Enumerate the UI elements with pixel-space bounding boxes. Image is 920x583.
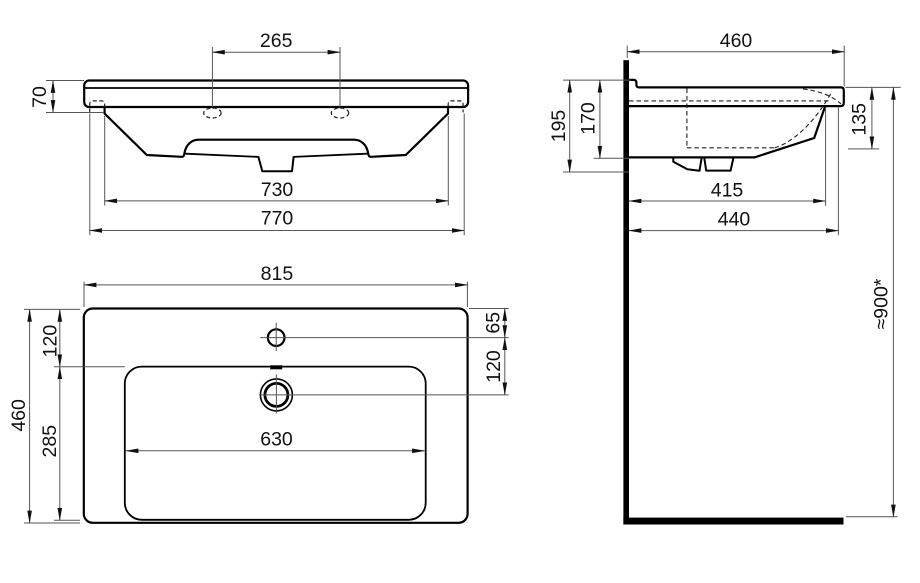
svg-text:460: 460 [720,30,753,52]
svg-text:≈900*: ≈900* [870,278,892,329]
svg-text:440: 440 [718,209,751,231]
svg-text:285: 285 [39,425,61,458]
svg-text:120: 120 [483,350,505,383]
svg-text:815: 815 [261,263,294,285]
svg-text:460: 460 [8,399,30,432]
svg-text:135: 135 [849,103,871,136]
svg-text:415: 415 [711,180,744,202]
svg-text:265: 265 [260,30,293,52]
svg-text:630: 630 [260,429,293,451]
svg-text:70: 70 [29,86,51,108]
svg-text:120: 120 [39,325,61,358]
svg-text:195: 195 [548,110,570,143]
svg-text:65: 65 [483,312,505,334]
svg-text:730: 730 [261,179,294,201]
svg-text:170: 170 [577,102,599,135]
svg-text:770: 770 [261,208,294,230]
